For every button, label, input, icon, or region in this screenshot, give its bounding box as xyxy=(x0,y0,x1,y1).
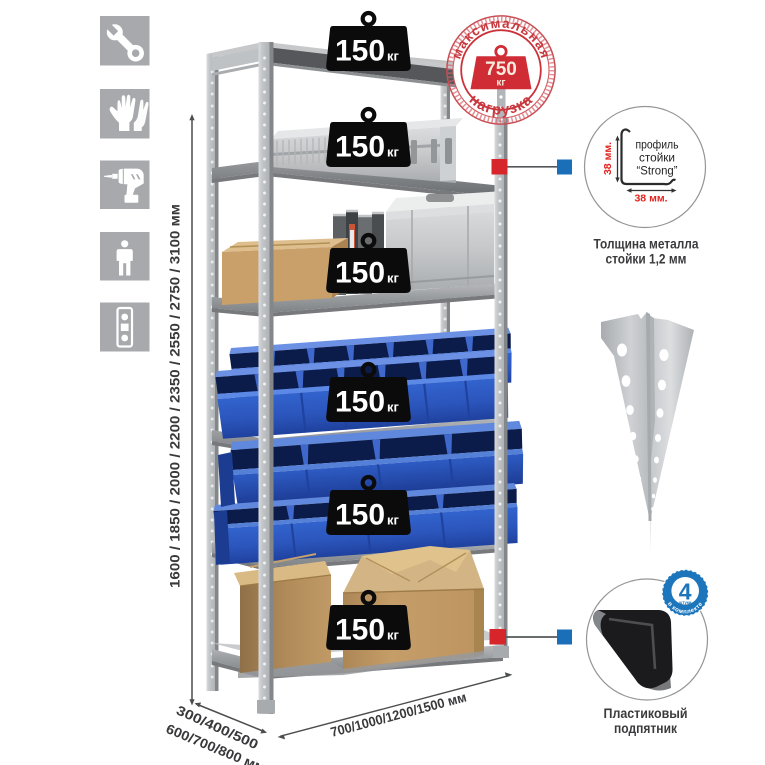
svg-text:профиль: профиль xyxy=(636,138,679,152)
svg-text:38 мм.: 38 мм. xyxy=(634,193,667,205)
svg-text:1600 / 1850 / 2000 / 2200 / 23: 1600 / 1850 / 2000 / 2200 / 2350 / 2550 … xyxy=(168,204,183,588)
svg-text:подпятник: подпятник xyxy=(614,720,678,736)
svg-text:Пластиковый: Пластиковый xyxy=(604,705,688,721)
svg-text:“Strong”: “Strong” xyxy=(637,164,678,178)
svg-text:штуки: штуки xyxy=(679,600,692,605)
svg-text:стойки: стойки xyxy=(639,151,675,165)
svg-text:38 мм.: 38 мм. xyxy=(602,142,614,175)
svg-text:Толщина металла: Толщина металла xyxy=(594,236,699,252)
svg-text:кг: кг xyxy=(496,78,505,89)
svg-text:стойки 1,2 мм: стойки 1,2 мм xyxy=(606,251,687,267)
